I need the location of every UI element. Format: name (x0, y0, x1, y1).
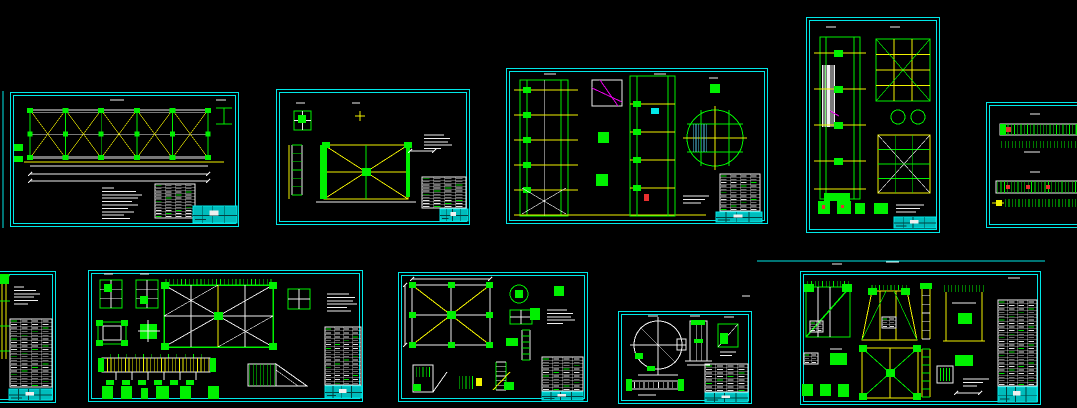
sheet-bracing-plan-details-drawing (398, 272, 588, 402)
sheet-frame-details-and-schedule-drawing (800, 271, 1041, 405)
sheet-braced-frame-elevation (276, 89, 470, 225)
sheet-bracing-plan-details (398, 272, 588, 402)
cad-drawing-canvas[interactable] (0, 0, 1077, 408)
sheet-platform-framing-details-drawing (88, 270, 363, 402)
sheet-truss-elevation-drawing (10, 92, 239, 227)
sheet-notes-and-material-table (0, 271, 56, 403)
sheet-tower-elevations-and-plan (506, 68, 768, 224)
sheet-section-details (618, 311, 752, 404)
sheet-truss-elevation (10, 92, 239, 227)
sheet-column-and-floor-plans (806, 17, 940, 233)
sheet-tower-elevations-and-plan-drawing (506, 68, 768, 224)
sheet-beam-details (986, 102, 1077, 228)
sheet-section-details-drawing (618, 311, 752, 404)
sheet-notes-and-material-table-drawing (0, 271, 56, 403)
sheet-column-and-floor-plans-drawing (806, 17, 940, 233)
sheet-frame-details-and-schedule (800, 271, 1041, 405)
sheet-platform-framing-details (88, 270, 363, 402)
sheet-beam-details-drawing (986, 102, 1077, 228)
sheet-braced-frame-elevation-drawing (276, 89, 470, 225)
